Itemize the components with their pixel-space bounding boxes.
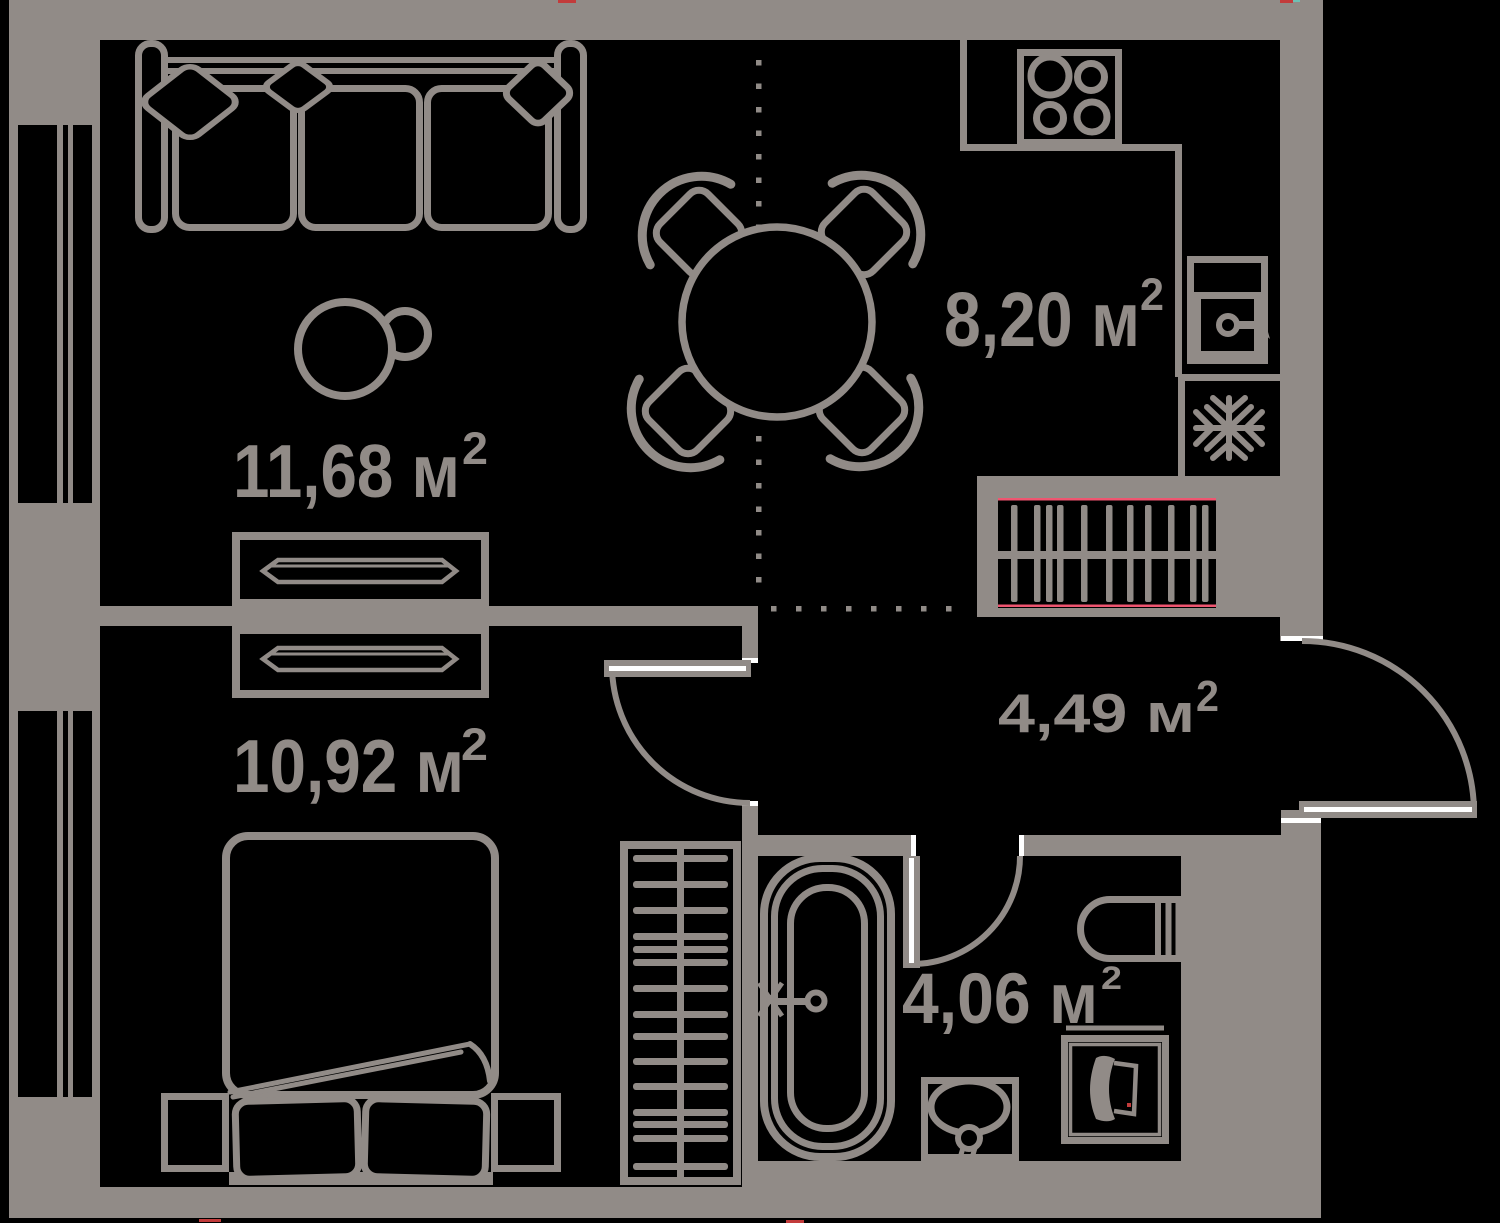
svg-text:2: 2: [1101, 960, 1122, 996]
svg-text:8,20 м: 8,20 м: [944, 277, 1140, 363]
svg-text:2: 2: [461, 719, 488, 770]
svg-text:11,68 м: 11,68 м: [233, 429, 460, 513]
svg-text:2: 2: [462, 423, 488, 474]
svg-text:4,49 м: 4,49 м: [998, 682, 1195, 744]
svg-text:2: 2: [1140, 269, 1164, 320]
svg-text:2: 2: [1196, 672, 1219, 721]
svg-text:10,92 м: 10,92 м: [233, 724, 464, 808]
